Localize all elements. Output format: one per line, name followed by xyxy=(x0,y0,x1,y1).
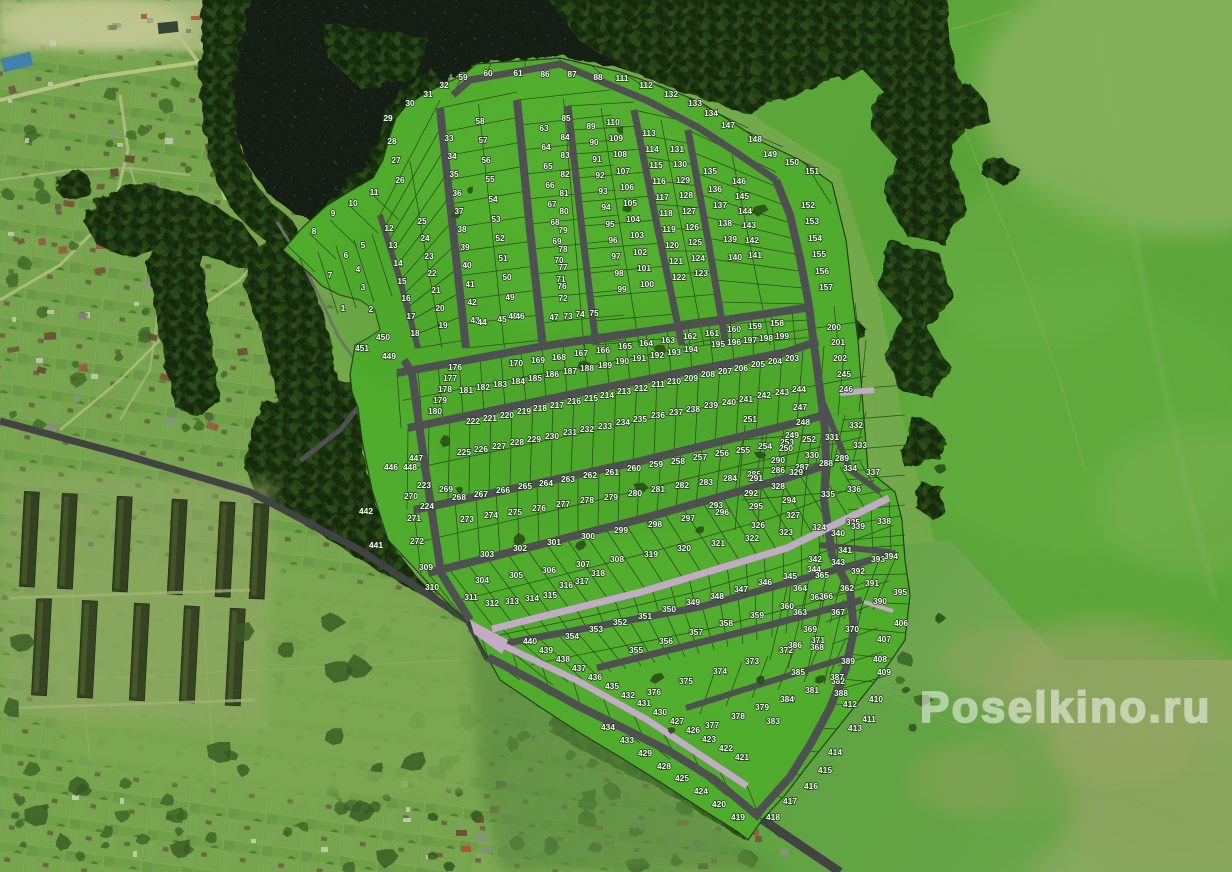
svg-text:Poselkino.ru: Poselkino.ru xyxy=(920,683,1212,732)
